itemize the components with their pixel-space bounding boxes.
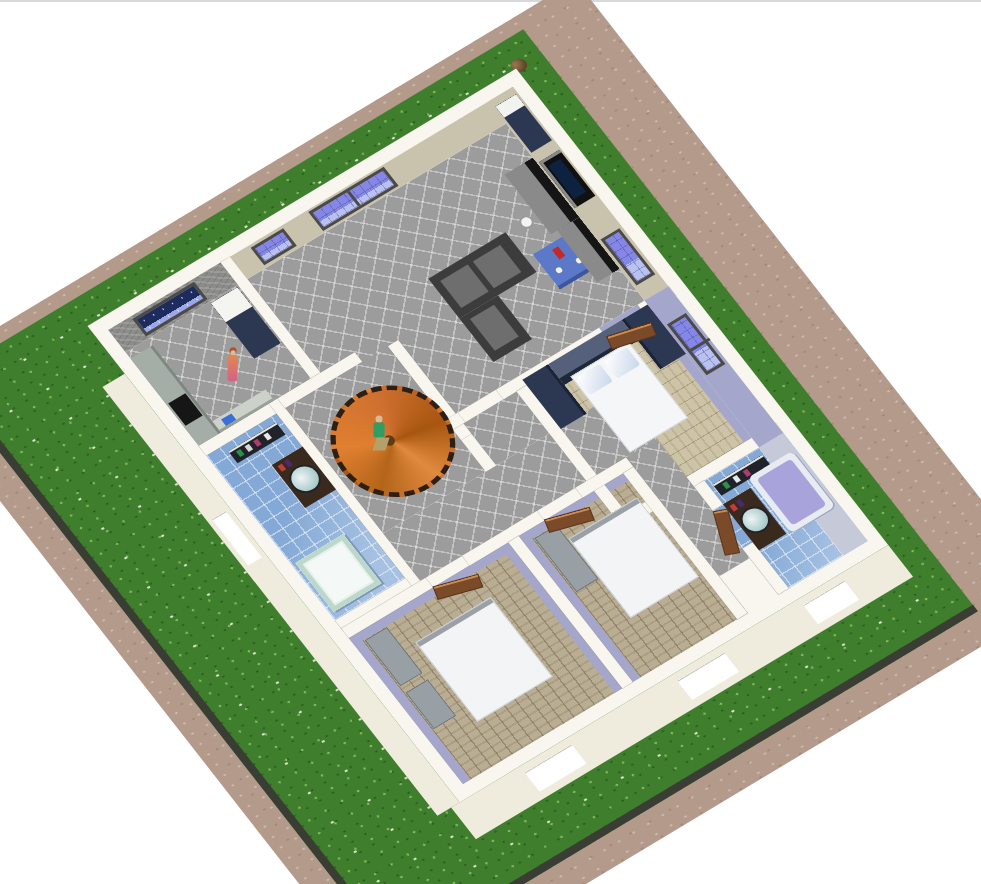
pillow bbox=[604, 347, 641, 378]
bedroom3-window-exterior[interactable] bbox=[677, 653, 739, 700]
bedroom2-window-exterior[interactable] bbox=[525, 744, 587, 791]
window-edge-line bbox=[0, 0, 981, 2]
render-viewport bbox=[0, 0, 981, 884]
dirt-ground[interactable] bbox=[0, 0, 981, 884]
bottle[interactable] bbox=[552, 246, 565, 259]
bathroom1-window-exterior[interactable] bbox=[212, 511, 262, 565]
scene-3d bbox=[0, 0, 981, 884]
house[interactable] bbox=[87, 69, 888, 803]
bathroom2-window-exterior[interactable] bbox=[803, 581, 859, 625]
man-figure[interactable] bbox=[372, 416, 388, 452]
pillow bbox=[576, 364, 613, 395]
woman-figure[interactable] bbox=[227, 347, 239, 381]
lawn[interactable] bbox=[0, 29, 978, 884]
kitchen-sink[interactable] bbox=[221, 413, 236, 426]
bath1-washbasin[interactable] bbox=[286, 462, 324, 496]
